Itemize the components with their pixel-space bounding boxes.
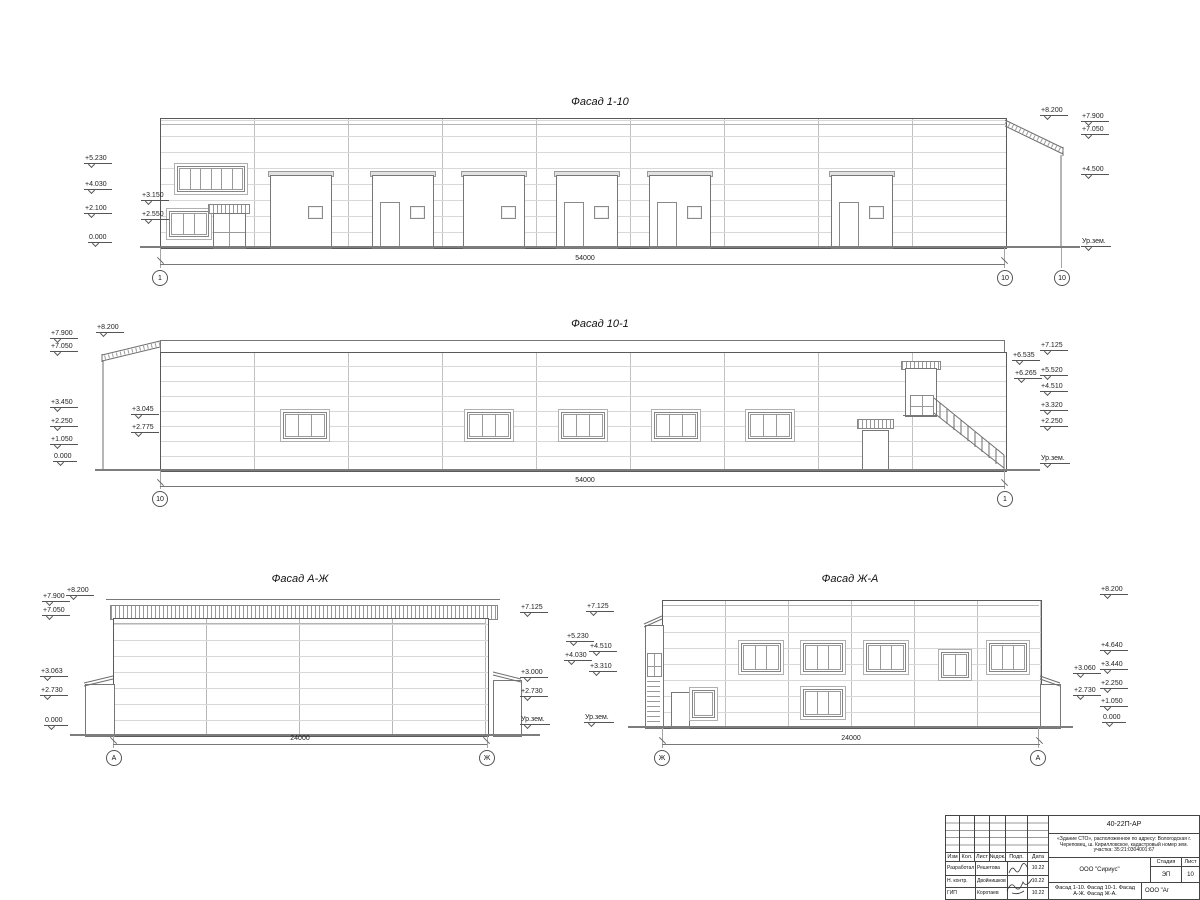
level-mark: +7.125	[1040, 342, 1068, 351]
company2: ООО "Аг	[1141, 882, 1200, 900]
window	[692, 690, 715, 718]
signature-cell	[1007, 861, 1028, 876]
level-mark: +6.265	[1014, 370, 1042, 379]
facade-a-zh-title: Фасад А-Ж	[240, 573, 360, 585]
upper-door	[905, 368, 937, 417]
tower-window	[647, 653, 662, 677]
level-mark: +6.535	[1012, 352, 1040, 361]
level-mark: +3.320	[1040, 402, 1068, 411]
facade-a-zh-wall	[113, 618, 489, 737]
dimension-label: 24000	[806, 735, 896, 742]
window	[989, 643, 1027, 672]
facade-10-1-title: Фасад 10-1	[540, 318, 660, 330]
annex	[493, 680, 522, 737]
level-mark: +5.230	[84, 155, 112, 164]
roof-edge	[106, 599, 500, 600]
sheet-content: Фасад 1-10. Фасад 10-1. Фасад А-Ж. Фасад…	[1048, 882, 1142, 900]
level-mark: +3.045	[131, 406, 159, 415]
project-description: «Здание СТО», расположенное по адресу: В…	[1048, 833, 1200, 858]
gate	[372, 175, 434, 249]
level-mark: +7.050	[42, 607, 70, 616]
window	[169, 211, 209, 237]
gate	[649, 175, 711, 249]
level-mark: +5.520	[1040, 367, 1068, 376]
signature-cell	[1007, 887, 1028, 900]
ground-line	[140, 246, 1080, 248]
facade-zh-a-title: Фасад Ж-А	[790, 573, 910, 585]
level-mark: +8.200	[1100, 586, 1128, 595]
role: Разработал	[945, 861, 976, 876]
level-mark: +3.150	[141, 192, 169, 201]
level-mark: +4.500	[1081, 166, 1109, 175]
role: ГИП	[945, 887, 976, 900]
door	[862, 430, 889, 471]
level-mark: +2.250	[50, 418, 78, 427]
window	[741, 643, 781, 672]
level-mark: Ур.зем.	[1081, 238, 1111, 247]
level-mark: +7.050	[1081, 126, 1109, 135]
company: ООО "Сириус"	[1048, 857, 1151, 883]
level-mark: +8.200	[96, 324, 124, 333]
date: 10.22	[1027, 861, 1049, 876]
date: 10.22	[1027, 887, 1049, 900]
axis-bubble: 1	[997, 491, 1013, 507]
level-mark: +3.063	[40, 668, 68, 677]
level-mark: +2.730	[520, 688, 548, 697]
window	[561, 412, 605, 439]
dimension-label: 54000	[540, 255, 630, 262]
dimension-line	[160, 264, 1005, 265]
axis-bubble: 10	[1054, 270, 1070, 286]
level-mark: +3.310	[589, 663, 617, 672]
window	[803, 689, 843, 717]
ladder	[647, 678, 660, 727]
doc-number: 40-22П-АР	[1048, 815, 1200, 834]
level-mark: +2.730	[1073, 687, 1101, 696]
window	[941, 652, 969, 678]
axis-bubble: 10	[997, 270, 1013, 286]
door	[671, 692, 690, 729]
axis-bubble: Ж	[479, 750, 495, 766]
level-mark: Ур.зем.	[584, 714, 614, 723]
level-mark: +7.125	[586, 603, 614, 612]
window	[467, 412, 511, 439]
axis-bubble: 10	[152, 491, 168, 507]
name: Решетова	[975, 861, 1008, 876]
gate	[463, 175, 525, 249]
level-mark: Ур.зем.	[1040, 455, 1070, 464]
dimension-label: 24000	[255, 735, 345, 742]
axis-bubble: А	[106, 750, 122, 766]
dimension-line	[113, 744, 487, 745]
level-mark: +4.030	[564, 652, 592, 661]
level-mark: +2.100	[84, 205, 112, 214]
facade-zh-a-wall	[662, 600, 1042, 729]
level-mark: +7.900	[42, 593, 70, 602]
level-mark: +4.510	[589, 643, 617, 652]
level-mark: +2.550	[141, 211, 169, 220]
level-mark: +2.775	[131, 424, 159, 433]
axis-bubble: А	[1030, 750, 1046, 766]
level-mark: 0.000	[44, 717, 68, 726]
dimension-label: 54000	[540, 477, 630, 484]
entrance-door	[213, 213, 246, 249]
parapet-line	[161, 124, 1004, 125]
level-mark: 0.000	[88, 234, 112, 243]
facade-1-10-title: Фасад 1-10	[540, 96, 660, 108]
level-mark: +3.000	[520, 669, 548, 678]
level-mark: +8.200	[66, 587, 94, 596]
window	[803, 643, 843, 672]
window	[654, 412, 698, 439]
level-mark: +7.900	[1081, 113, 1109, 122]
window	[866, 643, 906, 672]
window	[283, 412, 327, 439]
level-mark: +2.250	[1040, 418, 1068, 427]
level-mark: +1.050	[50, 436, 78, 445]
level-mark: 0.000	[1102, 714, 1126, 723]
title-block: Изм Кол. Лист №док. Подп. Дата Разработа…	[945, 815, 1200, 900]
axis-bubble: 1	[152, 270, 168, 286]
level-mark: +2.730	[40, 687, 68, 696]
level-mark: Ур.зем.	[520, 716, 550, 725]
revision-grid	[945, 815, 1049, 853]
level-mark: +1.050	[1100, 698, 1128, 707]
level-mark: +3.450	[50, 399, 78, 408]
door-canopy	[857, 419, 894, 429]
drawing-sheet: Фасад 1-10 54000 1 10 10 +5.230 +4.030 +…	[0, 0, 1200, 900]
name: Коротаев	[975, 887, 1008, 900]
dimension-line	[662, 744, 1040, 745]
ground-line	[95, 469, 1040, 471]
level-mark: +7.050	[50, 343, 78, 352]
stage-value: ЭП	[1150, 866, 1182, 883]
window	[748, 412, 792, 439]
level-mark: +3.440	[1100, 661, 1128, 670]
level-mark: +4.510	[1040, 383, 1068, 392]
level-mark: +3.060	[1073, 665, 1101, 674]
annex	[85, 684, 115, 737]
gate	[556, 175, 618, 249]
gate	[270, 175, 332, 249]
axis-bubble: Ж	[654, 750, 670, 766]
annex	[1040, 684, 1061, 729]
level-mark: +5.230	[566, 633, 594, 642]
level-mark: +2.250	[1100, 680, 1128, 689]
level-mark: 0.000	[53, 453, 77, 462]
level-mark: +4.640	[1100, 642, 1128, 651]
level-mark: +4.030	[84, 181, 112, 190]
level-mark: +7.900	[50, 330, 78, 339]
level-mark: +8.200	[1040, 107, 1068, 116]
ribbon-window	[177, 166, 245, 192]
ground-line	[628, 726, 1073, 728]
level-mark: +7.125	[520, 604, 548, 613]
gate	[831, 175, 893, 249]
sheet-number: 10	[1181, 866, 1200, 883]
dimension-line	[160, 486, 1005, 487]
